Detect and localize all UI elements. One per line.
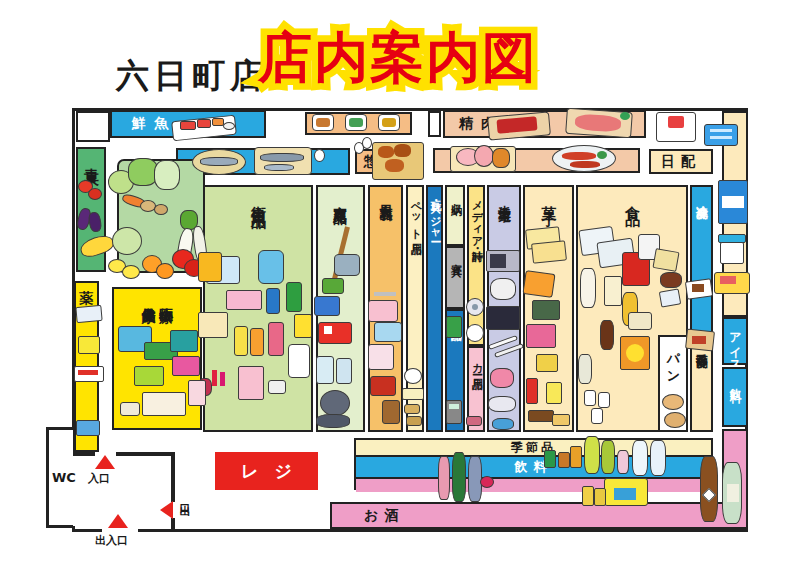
area-toys-leisure: 玩具・レジャー bbox=[426, 185, 443, 432]
page-title-text: 店内案内図 bbox=[258, 26, 538, 89]
register-label: レジ bbox=[241, 460, 308, 483]
fried-food-illustration bbox=[348, 136, 430, 186]
drug-items-illustration bbox=[74, 300, 104, 442]
area-appliances-label: 生活家電 bbox=[495, 194, 513, 202]
area-bedding: 寝具 bbox=[445, 246, 465, 309]
stationery-items-illustration bbox=[444, 314, 466, 430]
area-hygiene-label: 衛生日用品 bbox=[249, 194, 268, 204]
sashimi-illustration bbox=[172, 112, 242, 142]
page-title: 店内案内図 店内案内図 bbox=[258, 26, 538, 91]
area-drinks-side: 飲料 bbox=[722, 367, 748, 427]
area-bedding-label: 寝具 bbox=[448, 255, 463, 259]
household-items-illustration bbox=[314, 226, 364, 430]
frozen-packs-illustration bbox=[684, 278, 716, 360]
fish-display-illustration bbox=[192, 145, 342, 178]
area-daily-goods-label: 日配 bbox=[661, 153, 701, 171]
wc-label: WC bbox=[52, 470, 76, 485]
area-storage: 収納 bbox=[445, 185, 465, 246]
front-shelf-pink-row bbox=[356, 479, 711, 492]
area-ice-cream-label: アイス bbox=[727, 324, 744, 365]
area-clothing-label: 男女衣料品 bbox=[377, 194, 395, 199]
store-guide-map: 六日町店 店内案内図 店内案内図 鮮魚 青果 惣菜 精肉 日配 アイス 飲料 bbox=[0, 0, 800, 577]
area-drinks-side-label: 飲料 bbox=[727, 378, 744, 384]
ham-sausage-illustration bbox=[450, 142, 630, 175]
appliance-items-illustration bbox=[484, 248, 524, 432]
area-media-clocks-label: メディア・時計 bbox=[469, 192, 484, 242]
area-storage-label: 収納 bbox=[448, 194, 463, 198]
deli-dishes-illustration bbox=[312, 114, 402, 133]
vestibule-wall-v2 bbox=[171, 518, 175, 531]
entrance-exit-label: 出入口 bbox=[95, 533, 128, 548]
beer-case-illustration bbox=[580, 476, 650, 510]
area-fresh-fish-label: 鮮魚 bbox=[132, 115, 176, 133]
clothing-items-illustration bbox=[366, 292, 406, 430]
wc-room: WC bbox=[46, 427, 73, 528]
vestibule-wall-v1 bbox=[171, 452, 175, 502]
area-ice-cream: アイス bbox=[722, 317, 748, 365]
area-toys-leisure-label: 玩具・レジャー bbox=[427, 192, 442, 237]
area-frozen-food-label: 冷凍食品 bbox=[693, 195, 710, 199]
store-name: 六日町店 bbox=[116, 54, 268, 99]
area-sweets-label: 菓子 bbox=[539, 194, 558, 206]
dairy-illustration bbox=[712, 176, 748, 296]
area-car-goods-label: カー用品 bbox=[469, 355, 484, 372]
pet-items-illustration bbox=[402, 368, 426, 430]
tofu-ice-illustration bbox=[652, 110, 740, 150]
register-counter: レジ bbox=[215, 452, 318, 490]
area-food-label: 食品 bbox=[623, 194, 642, 206]
bread-illustration bbox=[660, 392, 688, 432]
sake-bottles-illustration bbox=[696, 450, 748, 528]
area-daily-goods: 日配 bbox=[649, 149, 713, 174]
wine-bottles-illustration bbox=[436, 450, 494, 506]
meat-boards-illustration bbox=[488, 106, 644, 142]
entrance-exit-arrow-icon bbox=[108, 514, 128, 528]
area-household-label: 家庭用品 bbox=[332, 194, 350, 202]
snack-items-illustration bbox=[522, 224, 574, 430]
vestibule-wall-h1 bbox=[75, 452, 95, 456]
hygiene-products-illustration bbox=[198, 248, 316, 430]
cart-corner-box bbox=[76, 111, 110, 142]
medical-products-illustration bbox=[114, 322, 202, 428]
area-pet-label: ペット用品 bbox=[408, 194, 423, 237]
entrance-arrow-icon bbox=[95, 455, 115, 469]
exit-arrow-icon bbox=[160, 501, 173, 519]
divider-box bbox=[428, 111, 441, 137]
area-alcohol-label: お酒 bbox=[364, 507, 404, 525]
area-produce-label: 青果 bbox=[82, 156, 101, 164]
shelf-bottles-illustration bbox=[540, 436, 692, 478]
vestibule-wall-h2 bbox=[116, 452, 174, 456]
tomato-eggplant-illustration bbox=[76, 180, 108, 238]
area-alcohol: お酒 bbox=[330, 502, 748, 529]
entrance-label: 入口 bbox=[88, 471, 110, 486]
